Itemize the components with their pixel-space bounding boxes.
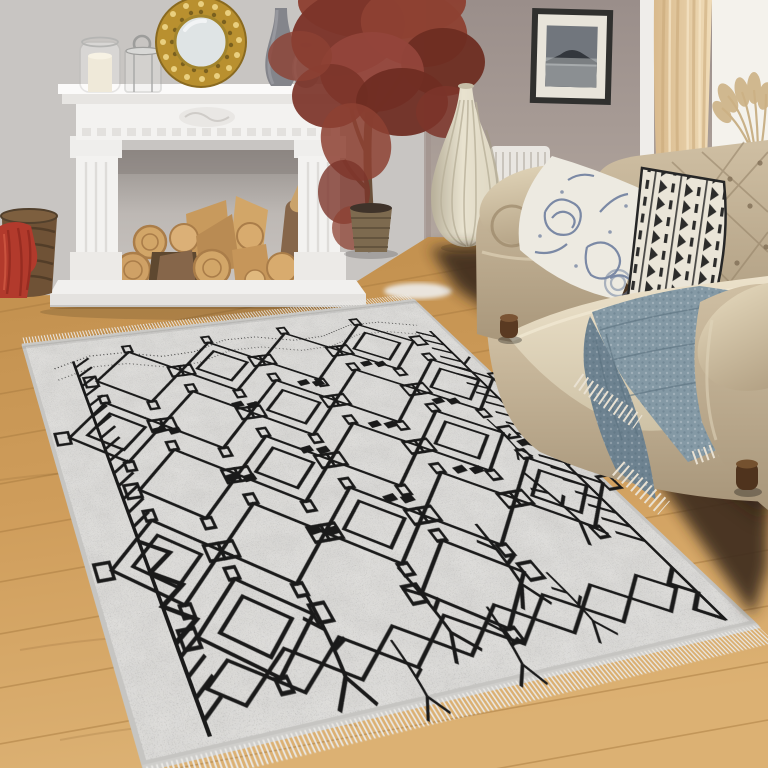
foreground-layer [0,0,768,768]
living-room-scene [0,0,768,768]
beige-chesterfield-sofa [474,140,768,510]
